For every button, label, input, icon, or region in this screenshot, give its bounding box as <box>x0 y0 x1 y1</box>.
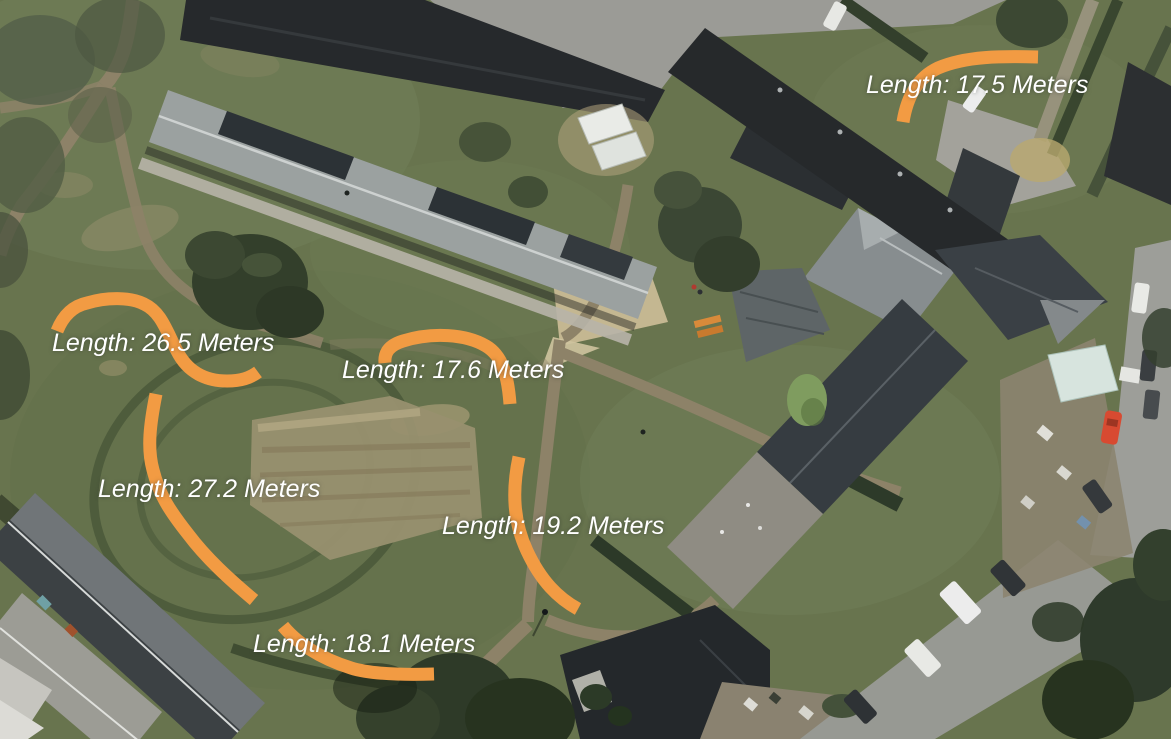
measurement-label-17-6m: Length: 17.6 Meters <box>342 356 564 384</box>
lamp-post <box>542 609 548 615</box>
measurement-label-27-2m: Length: 27.2 Meters <box>98 475 320 503</box>
measurement-label-19-2m: Length: 19.2 Meters <box>442 512 664 540</box>
measurement-label-18-1m: Length: 18.1 Meters <box>253 630 475 658</box>
satellite-image <box>0 0 1171 739</box>
greenhouses <box>558 104 654 176</box>
measurement-label-26-5m: Length: 26.5 Meters <box>52 329 274 357</box>
measurement-label-17-5m: Length: 17.5 Meters <box>866 71 1088 99</box>
aerial-map: Length: 17.5 Meters Length: 26.5 Meters … <box>0 0 1171 739</box>
person <box>692 285 697 290</box>
map-measure-screenshot: Length: 17.5 Meters Length: 26.5 Meters … <box>0 0 1171 739</box>
